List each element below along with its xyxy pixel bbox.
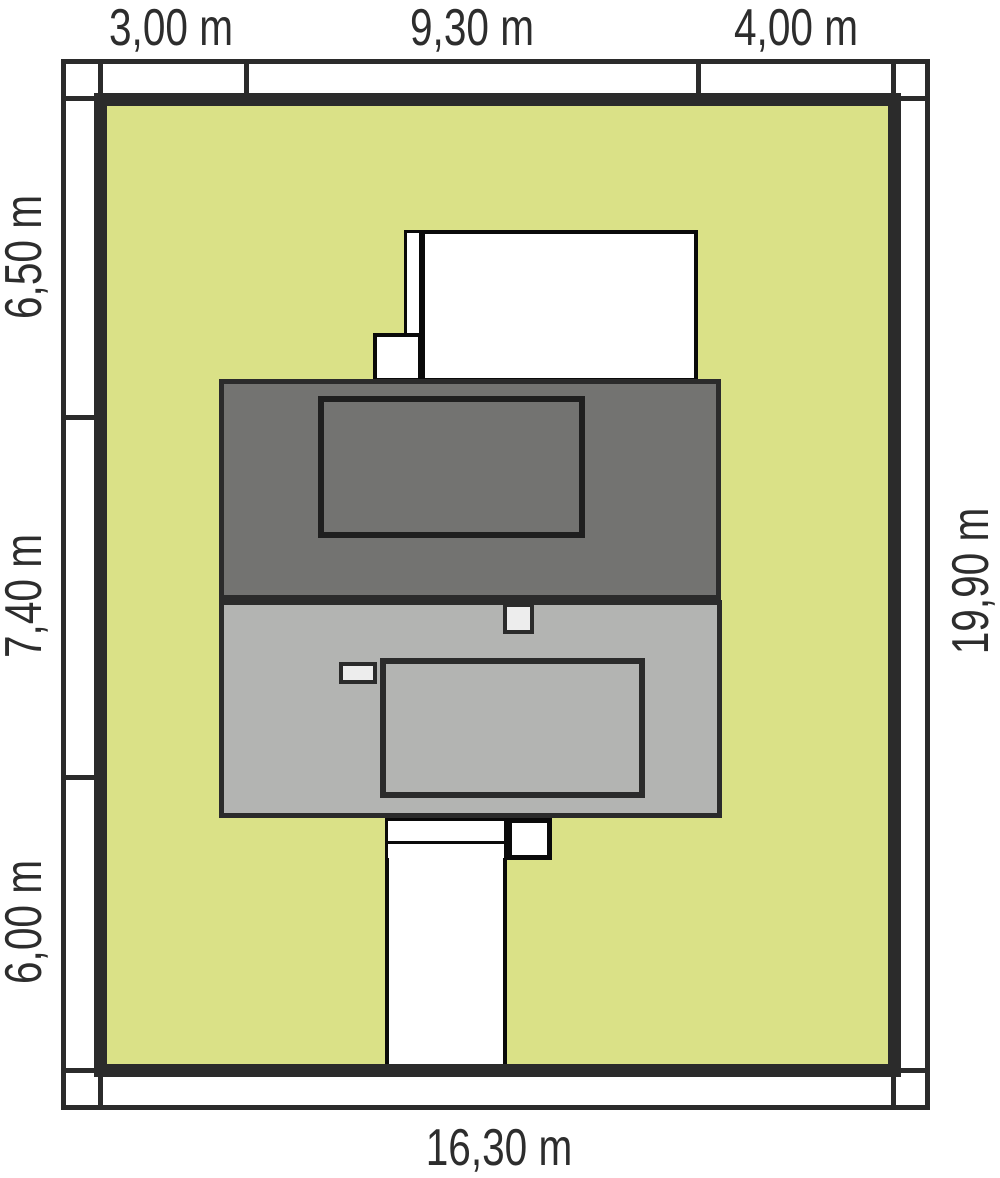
roof-vent — [339, 662, 377, 684]
dimension-tick — [66, 96, 94, 101]
driveway-path — [385, 858, 507, 1064]
dimension-tick — [244, 64, 249, 93]
dimension-tick — [66, 1068, 94, 1073]
dimension-tick — [901, 1068, 925, 1073]
dim-label-top-left-setback: 3,00 m — [109, 2, 233, 54]
dimension-tick — [98, 64, 103, 93]
terrace-step-block — [373, 333, 422, 382]
dimension-tick — [891, 1077, 896, 1105]
dimension-tick — [66, 415, 94, 420]
dimension-tick — [901, 96, 925, 101]
site-plan: 3,00 m 9,30 m 4,00 m 6,50 m 7,40 m 6,00 … — [0, 0, 1000, 1178]
terrace-area — [421, 230, 698, 382]
dimension-tick — [66, 775, 94, 780]
dim-label-left-top-setback: 6,50 m — [0, 195, 50, 319]
dim-label-top-house-width: 9,30 m — [410, 2, 534, 54]
dim-label-top-right-setback: 4,00 m — [734, 2, 858, 54]
roof-skylight-window — [318, 396, 585, 538]
chimney — [503, 603, 534, 634]
dimension-tick — [696, 64, 701, 93]
dim-label-bottom-plot-width: 16,30 m — [426, 1122, 573, 1174]
dim-label-left-bottom-setback: 6,00 m — [0, 860, 50, 984]
dimension-tick — [891, 64, 896, 93]
dormer-outline — [380, 658, 645, 798]
dim-label-left-house-depth: 7,40 m — [0, 534, 50, 658]
terrace-edge-strip — [404, 230, 422, 337]
dim-label-right-plot-depth: 19,90 m — [945, 508, 997, 655]
dimension-tick — [98, 1077, 103, 1105]
entry-landing — [507, 818, 552, 860]
